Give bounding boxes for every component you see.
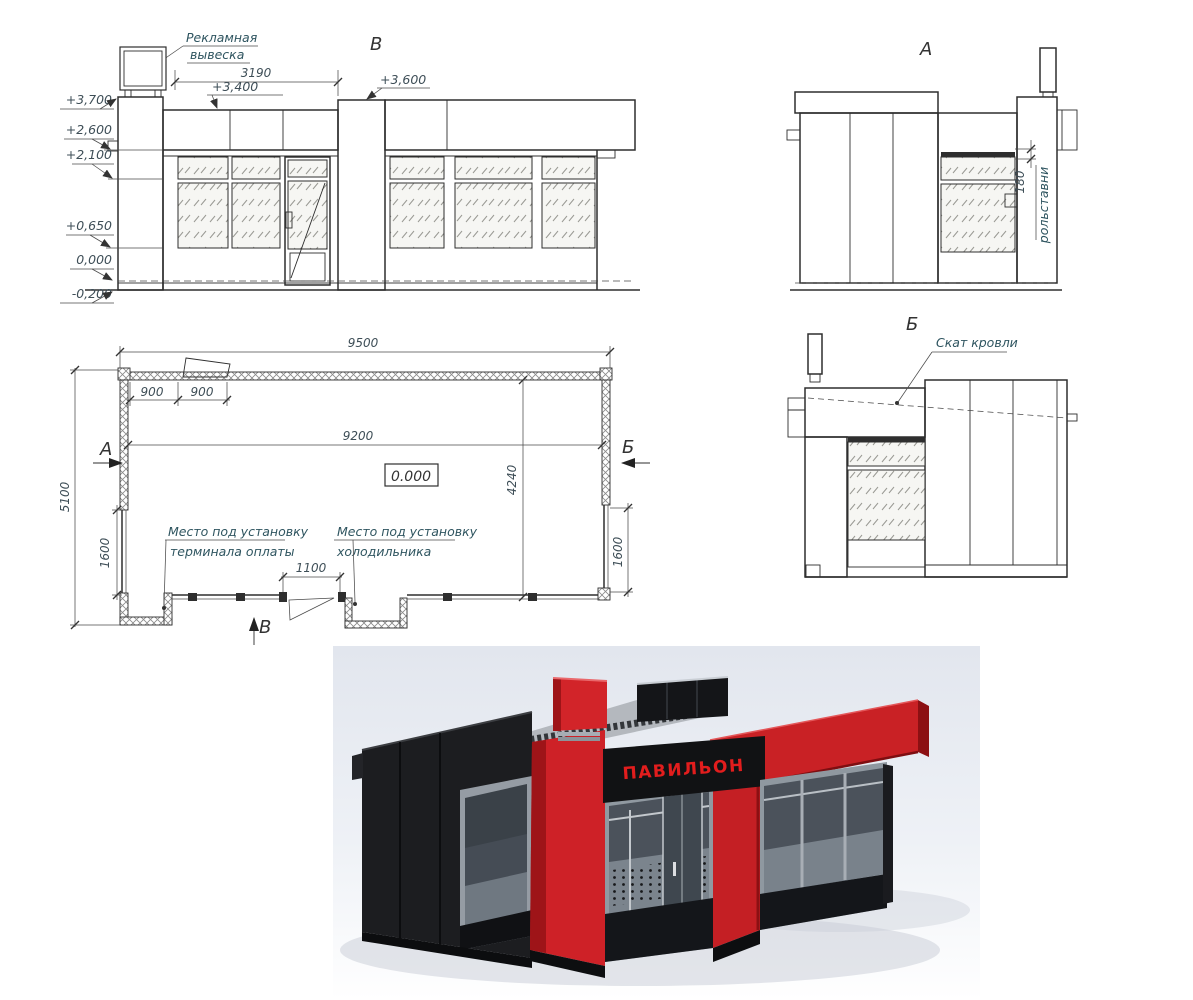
side-a-sign-tower — [1040, 48, 1056, 97]
mark-3600-text: +3,600 — [380, 72, 426, 87]
roof-slope-line — [808, 398, 1067, 418]
side-b-label: Б — [906, 314, 918, 335]
level-3700: +3,700 — [66, 92, 112, 107]
plan-left-wall — [120, 380, 128, 510]
mark-3600: +3,600 — [367, 72, 430, 99]
center-pylon — [338, 100, 385, 290]
side-a-label: А — [919, 39, 932, 60]
side-elevation-b: Б Скат кровли — [788, 314, 1077, 577]
section-a-text: А — [99, 439, 112, 460]
plan-top-wall — [120, 372, 610, 380]
front-elevation-label: В — [370, 34, 382, 55]
side-b-pylon — [805, 437, 847, 577]
dim-3190-text: 3190 — [241, 66, 272, 80]
dim-1100: 1100 — [279, 561, 344, 592]
pylon-body — [118, 97, 163, 290]
front-storefront-right — [760, 762, 893, 930]
level-0650: +0,650 — [66, 218, 112, 233]
shutters-text: рольставни — [1036, 167, 1051, 244]
sign-pylon — [108, 47, 166, 290]
plan-door — [279, 592, 346, 620]
terminal-label-1: Место под установку — [168, 524, 309, 539]
mark-3400: +3,400 — [207, 79, 283, 108]
fridge-label-2: холодильника — [336, 544, 431, 559]
fridge-label: Место под установку холодильника — [334, 524, 478, 606]
side-b-roof-band — [805, 388, 925, 437]
dim-900: 900 900 — [126, 382, 231, 406]
level-2600: +2,600 — [66, 122, 112, 137]
dim-900b-text: 900 — [191, 385, 214, 399]
base — [85, 281, 640, 290]
advertising-sign-box — [120, 47, 166, 90]
render-3d: ПАВИЛЬОН — [333, 646, 980, 1000]
central-pylon — [713, 778, 760, 962]
fridge-label-1: Место под установку — [337, 524, 478, 539]
dim-9500-text: 9500 — [348, 336, 379, 350]
parapet-band — [637, 677, 728, 722]
dim-9500: 9500 — [116, 336, 614, 368]
right-end-cap — [883, 764, 893, 904]
entrance-door — [285, 157, 330, 285]
dim-9200-text: 9200 — [343, 429, 374, 443]
level-m0200: -0,200 — [72, 286, 112, 301]
render-door-handle — [673, 862, 676, 876]
sign-callout: Рекламная вывеска — [154, 30, 258, 66]
level-2100: +2,100 — [66, 147, 112, 162]
dim-1100-text: 1100 — [296, 561, 327, 575]
section-marker-v: В — [254, 617, 271, 645]
dim-900a-text: 900 — [141, 385, 164, 399]
side-a-window — [941, 152, 1017, 252]
dim-9200: 9200 — [124, 429, 606, 449]
shutters-label: рольставни — [1036, 165, 1051, 244]
callout-text-2: вывеска — [190, 47, 244, 62]
section-b-text: Б — [622, 437, 634, 458]
floor-plan: 0.000 9500 900 900 9200 — [58, 336, 650, 645]
dim-180-text: 180 — [1013, 170, 1027, 193]
storefront-window-right — [390, 157, 595, 248]
side-b-window — [848, 437, 925, 567]
plan-level-text: 0.000 — [391, 469, 431, 485]
front-storefront-left — [605, 784, 713, 962]
callout-text-1: Рекламная — [186, 30, 258, 45]
section-v-text: В — [259, 617, 271, 638]
pavilion-drawing: В Рекламная вывеска — [0, 0, 1193, 1000]
dim-4240-text: 4240 — [505, 464, 519, 495]
roof-slope-callout: Скат кровли — [895, 335, 1018, 405]
side-elevation-a: А 180 рол — [787, 39, 1077, 290]
terminal-label-2: терминала оплаты — [170, 544, 295, 559]
section-marker-a: А — [93, 439, 122, 463]
level-marks: +3,700 +2,600 +2,100 +0,650 0,000 -0,200 — [60, 92, 163, 303]
front-elevation: В Рекламная вывеска — [60, 30, 640, 303]
side-b-body — [925, 380, 1067, 577]
dim-4240: 4240 — [505, 376, 527, 601]
drawing-sheet: В Рекламная вывеска — [0, 0, 1193, 1000]
dim-5100: 5100 — [58, 366, 120, 629]
plan-level-box: 0.000 — [385, 464, 438, 486]
dim-1600l-text: 1600 — [98, 537, 112, 568]
corner-pylon — [530, 730, 605, 978]
side-b-sign-tower — [808, 334, 822, 382]
section-marker-b: Б — [622, 437, 650, 463]
level-0000: 0,000 — [76, 252, 112, 267]
dim-1600r-text: 1600 — [611, 536, 625, 567]
left-black-wall — [352, 712, 532, 968]
mark-3400-text: +3,400 — [212, 79, 258, 94]
dim-5100-text: 5100 — [58, 481, 72, 512]
side-wall-window — [460, 776, 532, 950]
dim-1600-left: 1600 — [98, 505, 122, 600]
plan-right-wall — [602, 380, 610, 505]
left-fascia — [163, 110, 338, 150]
roof-slope-text: Скат кровли — [936, 335, 1018, 350]
storefront-window — [178, 157, 280, 248]
right-fascia — [385, 100, 635, 158]
dim-1600-right: 1600 — [610, 503, 633, 597]
